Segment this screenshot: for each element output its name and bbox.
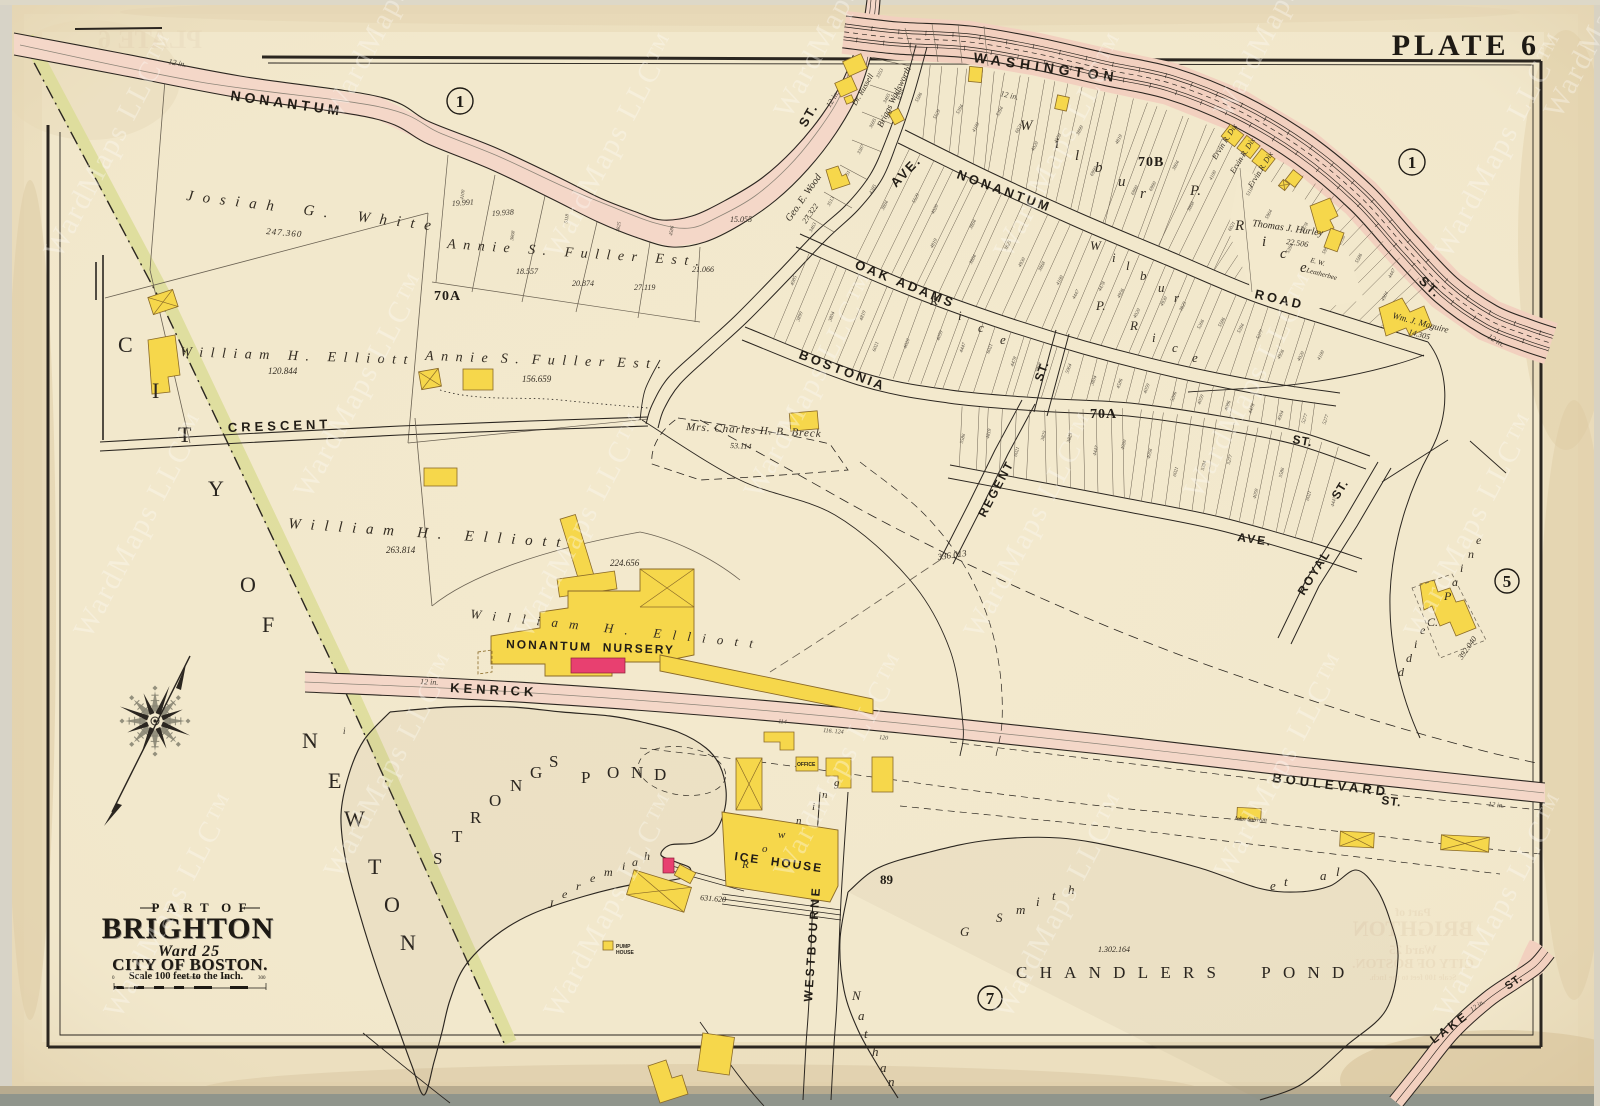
svg-text:P: P [581, 768, 590, 787]
svg-text:e: e [590, 871, 596, 885]
svg-text:200: 200 [222, 975, 228, 980]
svg-text:Y: Y [208, 476, 224, 501]
svg-text:N: N [302, 728, 318, 753]
svg-text:20.874: 20.874 [572, 279, 594, 288]
svg-text:c: c [978, 320, 984, 335]
svg-text:h: h [872, 1044, 879, 1059]
svg-text:BRIGHTON: BRIGHTON [1353, 916, 1474, 941]
svg-text:R: R [929, 293, 938, 308]
svg-text:N: N [510, 776, 522, 795]
svg-text:n: n [888, 1074, 895, 1089]
svg-text:i: i [1262, 234, 1266, 250]
svg-text:100 125 150: 100 125 150 [180, 975, 200, 980]
svg-text:S: S [433, 849, 442, 868]
svg-text:1: 1 [456, 92, 465, 111]
svg-text:N: N [400, 930, 416, 955]
svg-text:e: e [1000, 332, 1006, 347]
svg-text:89: 89 [880, 872, 894, 887]
svg-text:e: e [1270, 878, 1276, 893]
svg-text:r: r [576, 879, 581, 893]
svg-text:BRIGHTON: BRIGHTON [102, 912, 275, 945]
svg-text:t: t [1284, 874, 1288, 889]
svg-text:i: i [1036, 894, 1040, 909]
svg-text:Ward 25: Ward 25 [1388, 942, 1437, 957]
svg-text:u: u [1118, 174, 1126, 190]
svg-text:r: r [1140, 186, 1146, 202]
svg-text:R: R [1234, 218, 1244, 234]
svg-text:114: 114 [778, 718, 787, 726]
svg-text:27.119: 27.119 [634, 283, 655, 292]
svg-text:P.: P. [1189, 183, 1201, 199]
svg-text:I: I [152, 378, 159, 403]
svg-text:i: i [958, 308, 962, 323]
svg-text:d: d [1398, 665, 1405, 679]
svg-text:l: l [1336, 864, 1340, 879]
svg-text:D: D [654, 765, 666, 784]
svg-text:1: 1 [1408, 153, 1417, 172]
svg-text:a: a [1320, 868, 1327, 883]
svg-text:b: b [1095, 160, 1103, 176]
svg-text:5: 5 [1503, 572, 1512, 591]
svg-text:P.: P. [1095, 298, 1106, 313]
svg-text:N: N [631, 763, 643, 782]
svg-text:70A: 70A [434, 289, 461, 304]
svg-text:263.814: 263.814 [386, 545, 416, 555]
svg-text:OFFICE: OFFICE [797, 762, 816, 768]
svg-text:G: G [960, 924, 970, 939]
svg-text:O: O [384, 892, 400, 917]
svg-text:1.302.164: 1.302.164 [1098, 945, 1130, 954]
svg-text:O: O [240, 572, 256, 597]
svg-text:N: N [851, 988, 862, 1003]
svg-text:120: 120 [879, 735, 888, 742]
svg-text:ST.: ST. [1381, 793, 1403, 809]
svg-text:b: b [1140, 268, 1147, 283]
svg-text:224.656: 224.656 [610, 558, 640, 568]
svg-text:19.938: 19.938 [492, 207, 515, 218]
svg-text:R: R [1129, 318, 1138, 333]
svg-text:R: R [470, 808, 482, 827]
svg-text:18.557: 18.557 [516, 267, 539, 276]
svg-text:i: i [1112, 250, 1116, 265]
svg-text:W: W [1020, 118, 1034, 134]
svg-text:t: t [864, 1026, 868, 1041]
svg-text:70B: 70B [1138, 155, 1164, 170]
svg-text:W: W [1090, 238, 1102, 253]
svg-text:G: G [530, 763, 542, 782]
svg-text:d: d [1406, 651, 1413, 665]
svg-text:F: F [262, 612, 274, 637]
svg-text:e: e [562, 887, 568, 901]
svg-text:T: T [452, 827, 463, 846]
svg-text:15.055: 15.055 [730, 215, 752, 224]
svg-text:HOUSE: HOUSE [616, 950, 634, 956]
svg-text:C: C [118, 332, 133, 357]
svg-text:S: S [549, 752, 558, 771]
svg-text:PLATE 6: PLATE 6 [1392, 29, 1540, 62]
svg-text:a: a [880, 1060, 887, 1075]
svg-text:53.114: 53.114 [730, 441, 752, 451]
svg-text:u: u [1158, 280, 1165, 295]
svg-text:l: l [1126, 258, 1130, 273]
svg-text:O: O [607, 763, 619, 782]
svg-text:e: e [1192, 350, 1198, 365]
svg-text:O: O [489, 791, 501, 810]
svg-text:c: c [1172, 340, 1178, 355]
svg-text:C H A N D L E R S P O N D: C H A N D L E R S P O N D [1016, 963, 1348, 982]
svg-text:120.844: 120.844 [268, 366, 298, 376]
svg-text:21.066: 21.066 [692, 265, 714, 274]
svg-text:E: E [328, 768, 341, 793]
svg-text:c: c [1280, 246, 1287, 262]
svg-text:m: m [1016, 902, 1025, 917]
svg-text:300: 300 [258, 976, 266, 981]
svg-text:i: i [1152, 330, 1156, 345]
svg-text:J: J [548, 897, 554, 911]
svg-text:T: T [368, 854, 382, 879]
svg-text:a: a [858, 1008, 865, 1023]
svg-text:19.991: 19.991 [452, 197, 475, 208]
svg-text:S: S [996, 910, 1003, 925]
svg-text:156.659: 156.659 [522, 374, 552, 384]
